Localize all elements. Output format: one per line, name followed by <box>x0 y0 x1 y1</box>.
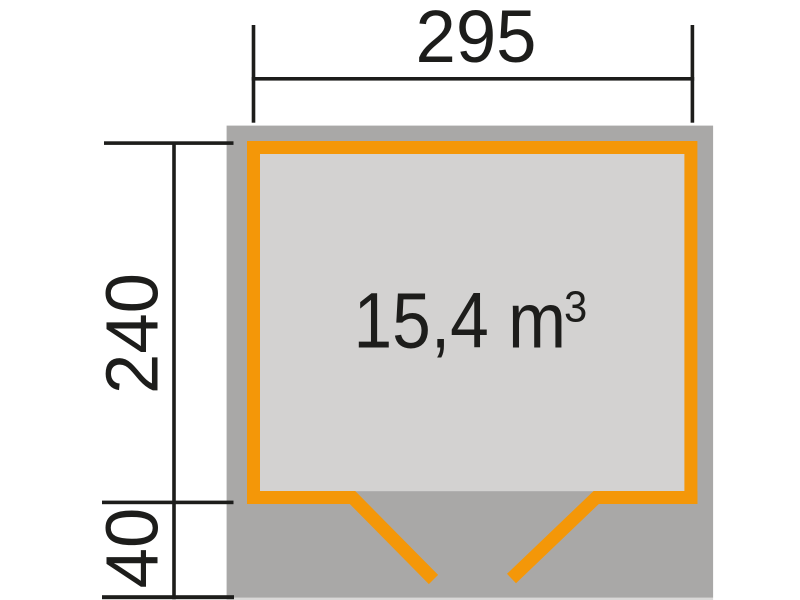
svg-text:3: 3 <box>564 283 587 332</box>
svg-text:15,4 m: 15,4 m <box>354 276 567 364</box>
svg-text:295: 295 <box>416 0 537 78</box>
svg-text:240: 240 <box>91 273 174 394</box>
svg-text:40: 40 <box>91 508 174 589</box>
